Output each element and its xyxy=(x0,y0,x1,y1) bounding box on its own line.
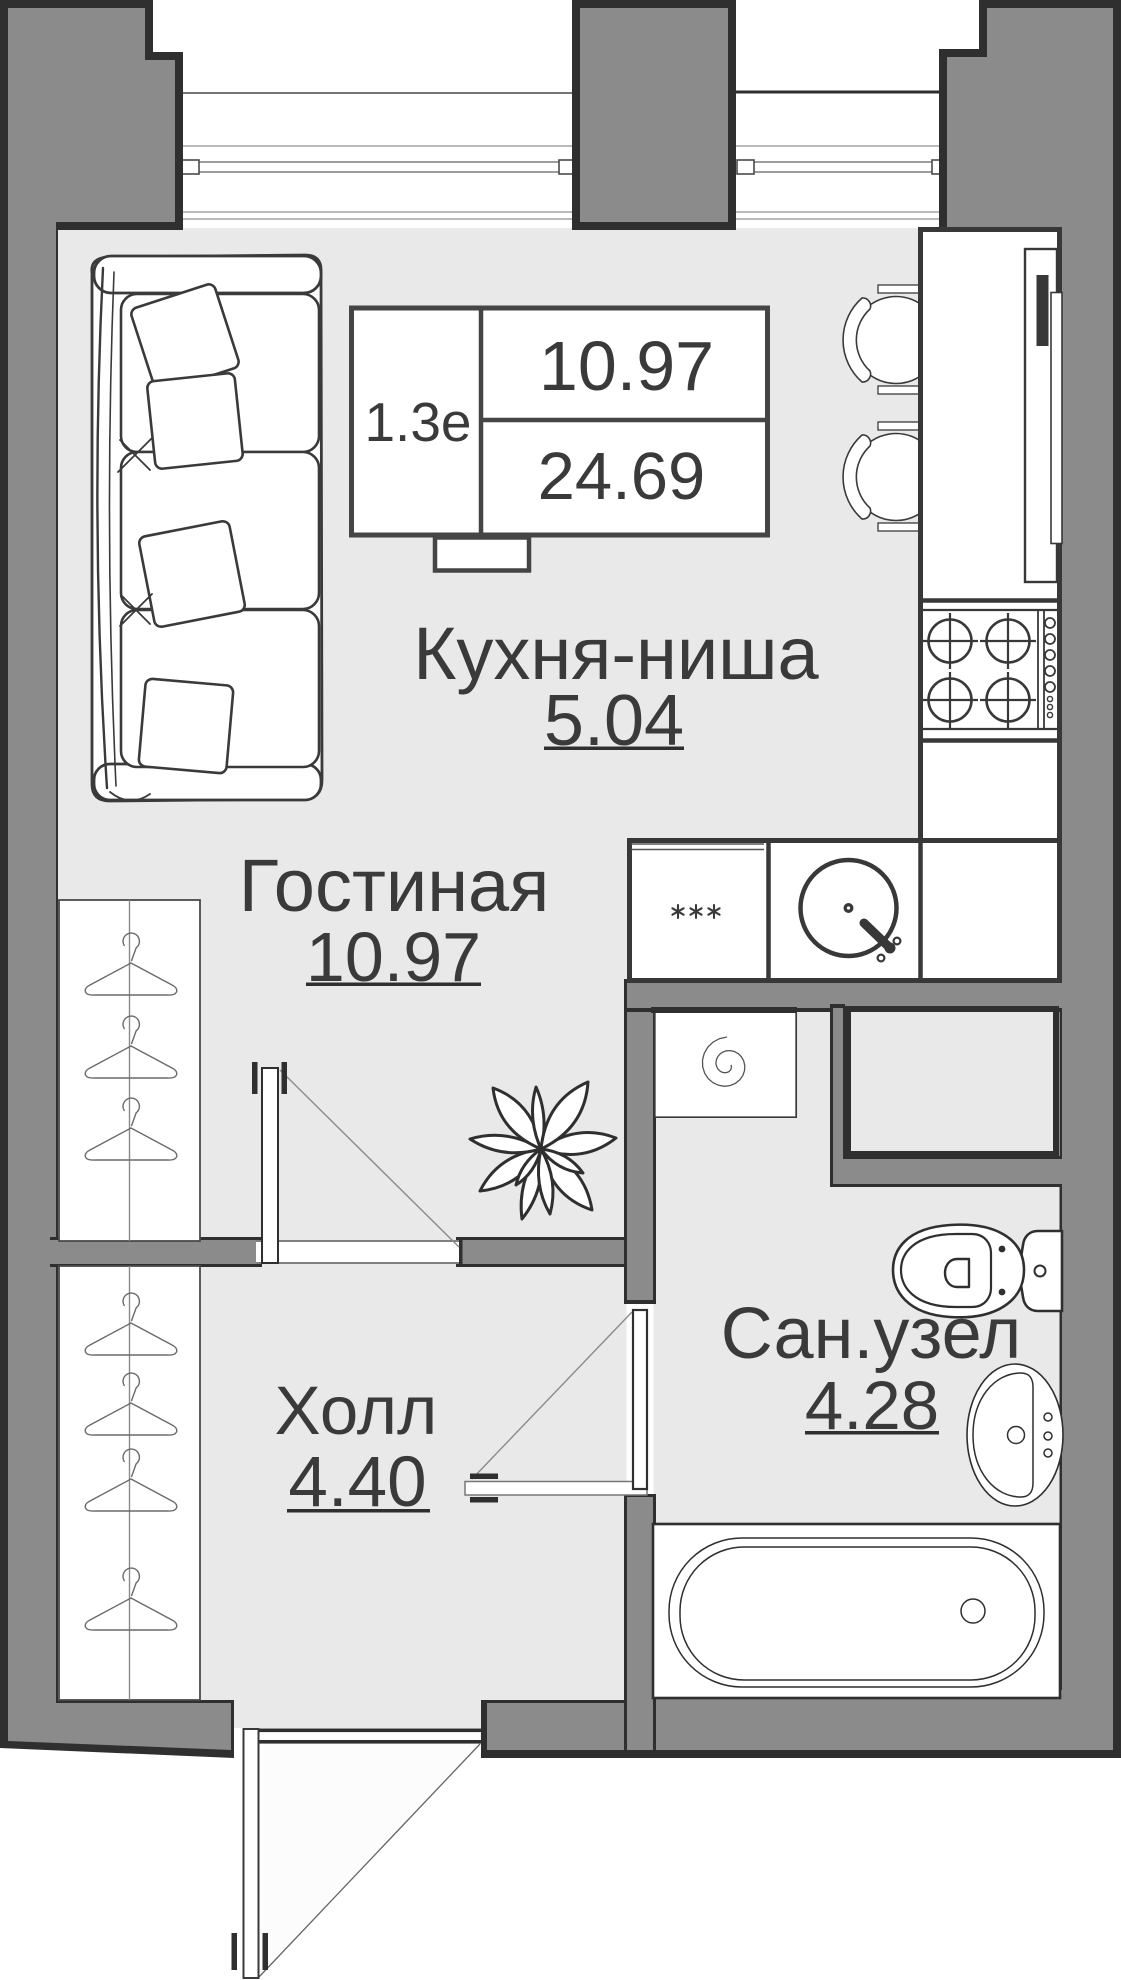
svg-text:10.97: 10.97 xyxy=(539,327,714,405)
svg-text:24.69: 24.69 xyxy=(538,439,706,514)
svg-text:1.3е: 1.3е xyxy=(364,391,471,453)
svg-text:Холл: Холл xyxy=(275,1372,438,1449)
svg-text:Гостиная: Гостиная xyxy=(239,844,550,927)
svg-text:Сан.узел: Сан.узел xyxy=(721,1294,1021,1374)
